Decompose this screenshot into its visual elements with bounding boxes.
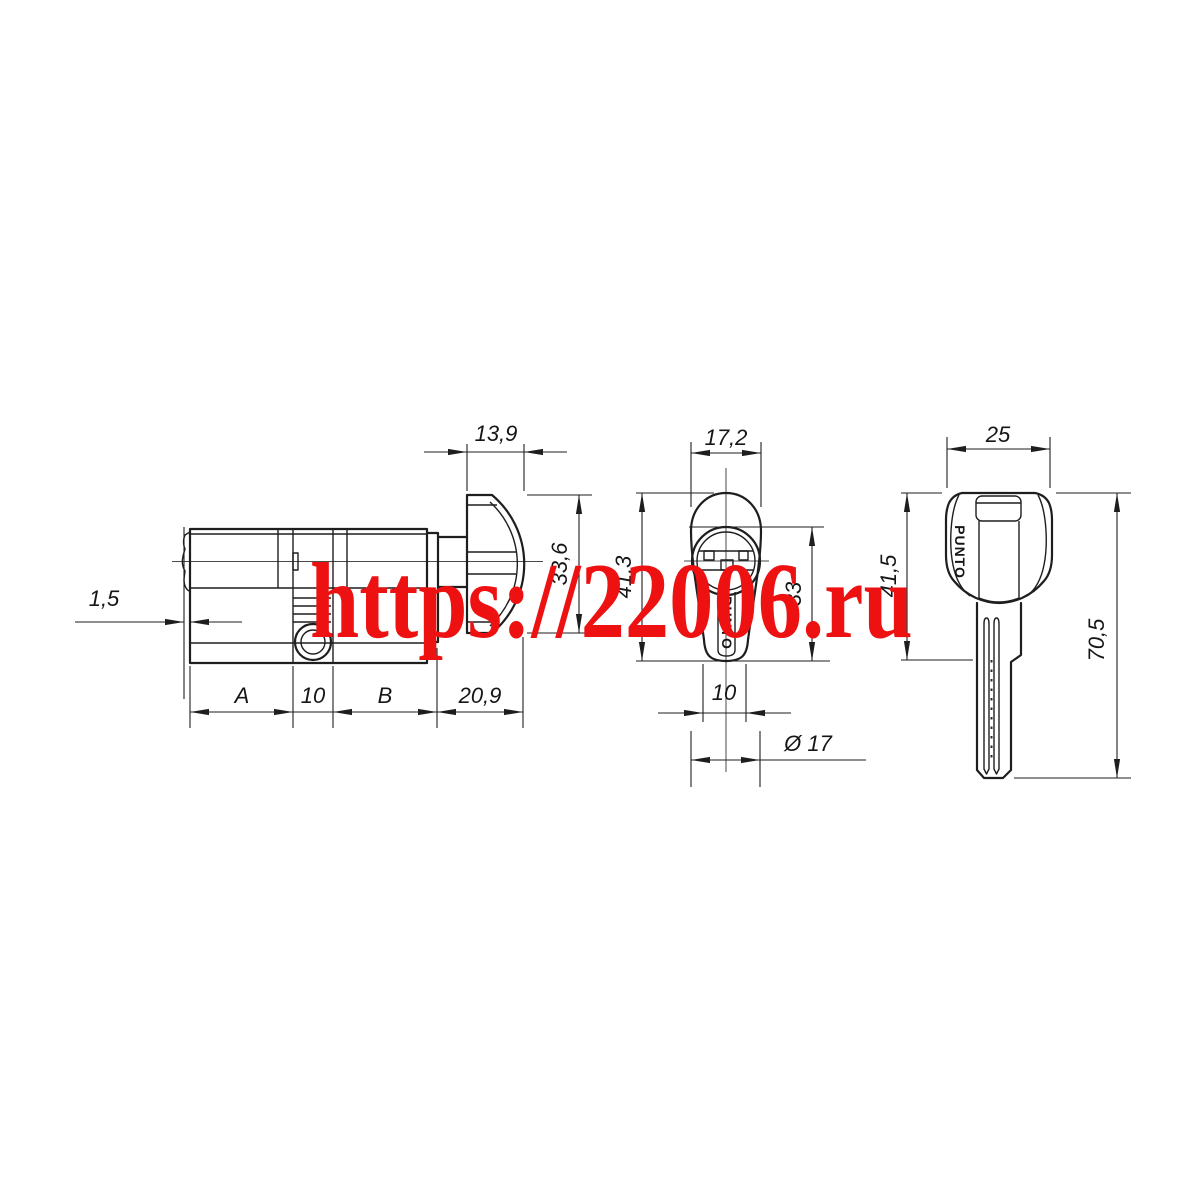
dim-key-length: 70,5 [1014,493,1131,778]
watermark: https://22006.ru [310,542,913,661]
dim-front-slot-width: 10 [658,664,791,722]
dim-tip-protrusion: 1,5 [75,527,242,699]
key-view: PUNTO 25 41,5 70,5 [876,422,1131,778]
dim-label-bow-width: 25 [985,422,1011,447]
bow-top-slot [976,496,1021,521]
watermark-url-text: https://22006.ru [310,542,913,661]
dim-label-tip: 1,5 [89,586,120,611]
blade-groove-left [984,618,989,774]
dim-plug-diameter: Ø 17 [691,731,866,787]
dim-label-knob-section: 20,9 [458,683,502,708]
dim-label-key-length: 70,5 [1084,618,1109,662]
technical-drawing-page: 13,9 33,6 1,5 A 10 B [0,0,1200,1200]
dim-label-center-width: 10 [301,683,326,708]
dim-label-knob-thickness: 13,9 [475,421,518,446]
dim-label-front-width: 17,2 [705,425,748,450]
dim-knob-thickness: 13,9 [424,421,567,491]
cylinder-technical-drawing: 13,9 33,6 1,5 A 10 B [0,0,1200,1200]
dim-label-a: A [233,683,250,708]
dim-bow-width: 25 [947,422,1050,488]
brand-marking-key: PUNTO [952,525,968,579]
blade-groove-right [994,618,999,774]
dim-label-b: B [378,683,393,708]
dim-label-plug-diameter: Ø 17 [783,731,832,756]
dim-label-front-slot-width: 10 [712,680,737,705]
